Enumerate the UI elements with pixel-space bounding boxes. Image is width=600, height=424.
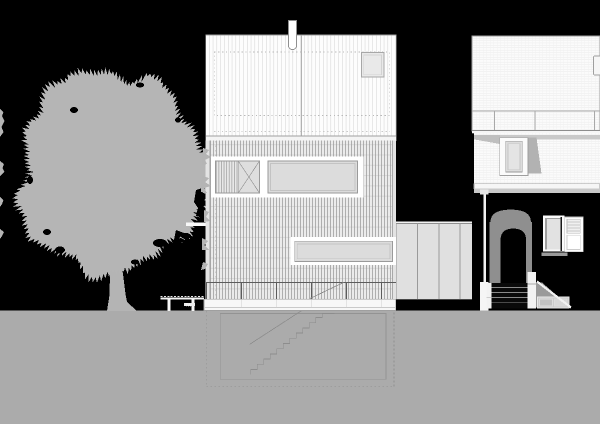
svg-text:TW: TW <box>185 303 192 308</box>
